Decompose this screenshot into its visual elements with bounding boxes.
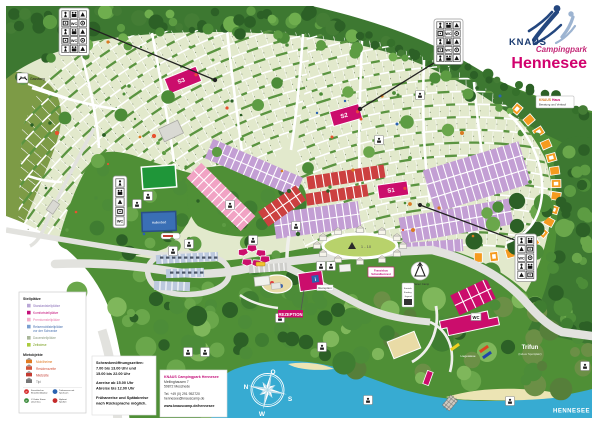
svg-text:Campingpark: Campingpark [536, 45, 588, 54]
svg-text:O: O [270, 369, 275, 376]
svg-text:Zeltwiese: Zeltwiese [33, 343, 47, 347]
svg-text:Trinkwasser mit: Trinkwasser mit [59, 389, 75, 392]
svg-text:WC: WC [473, 315, 480, 320]
svg-text:P: P [26, 399, 28, 403]
svg-text:Hennesee: Hennesee [511, 55, 587, 72]
svg-text:HENNESEE: HENNESEE [553, 409, 590, 415]
svg-text:N: N [244, 384, 249, 391]
svg-text:Spüllort: Spüllort [59, 401, 67, 404]
svg-text:Trifun: Trifun [522, 345, 539, 351]
svg-text:Franziskus: Franziskus [374, 269, 389, 273]
svg-text:Dauerstellplätze: Dauerstellplätze [33, 336, 56, 340]
svg-text:Schrankenöffnungszeiten:: Schrankenöffnungszeiten: [96, 361, 144, 365]
svg-text:WC: WC [445, 49, 452, 53]
svg-text:S: S [288, 396, 293, 403]
svg-text:Beratung und Verkauf: Beratung und Verkauf [539, 103, 566, 107]
svg-text:REZEPTION: REZEPTION [279, 312, 303, 317]
svg-text:Spülraum: Spülraum [59, 392, 69, 395]
svg-text:15.00 bis 22.00 Uhr: 15.00 bis 22.00 Uhr [96, 372, 131, 376]
svg-text:7.00 bis 13.00 Uhr und: 7.00 bis 13.00 Uhr und [96, 367, 137, 371]
svg-text:www.knauscamp.de/hennesee: www.knauscamp.de/hennesee [163, 404, 214, 408]
svg-text:WC: WC [518, 256, 525, 260]
svg-text:Frühanreise und Spätabreise: Frühanreise und Spätabreise [96, 396, 148, 400]
svg-text:Gassiweg: Gassiweg [30, 77, 45, 81]
svg-text:Standardstellplätze: Standardstellplätze [33, 304, 60, 308]
svg-text:Rezeption: Rezeption [318, 286, 332, 290]
svg-text:nach Rücksprache möglich.: nach Rücksprache möglich. [96, 402, 146, 406]
svg-text:Liegewiese: Liegewiese [460, 354, 475, 358]
svg-text:1 - 10: 1 - 10 [361, 244, 372, 249]
svg-text:WC: WC [71, 39, 78, 43]
svg-text:(Indoor Sportplatz): (Indoor Sportplatz) [518, 352, 541, 356]
svg-text:Meilinghausen 7: Meilinghausen 7 [164, 380, 189, 384]
svg-text:Komfortstellplätze: Komfortstellplätze [33, 311, 59, 315]
svg-text:P: P [26, 390, 28, 394]
svg-text:vor der Schranke: vor der Schranke [33, 329, 57, 333]
svg-text:hennesee@knauscamp.de: hennesee@knauscamp.de [164, 397, 205, 401]
svg-text:Hydrant: Hydrant [59, 398, 67, 401]
svg-text:KNAUS Campingpark Hennesee: KNAUS Campingpark Hennesee [164, 375, 219, 379]
svg-text:59872 Meschede: 59872 Meschede [164, 385, 190, 389]
svg-text:V-Oeder Strom: V-Oeder Strom [31, 398, 46, 401]
svg-text:KNAUS Haus: KNAUS Haus [539, 98, 560, 102]
svg-text:Kunterb.: Kunterb. [404, 287, 413, 290]
svg-text:Mietobjekte: Mietobjekte [23, 353, 43, 357]
svg-text:Brandmeldeplatz: Brandmeldeplatz [31, 392, 47, 395]
svg-text:Residenzzelte: Residenzzelte [36, 367, 56, 371]
svg-text:Schwalbennest: Schwalbennest [371, 272, 391, 276]
svg-text:WC: WC [117, 220, 124, 224]
svg-text:abschluss: abschluss [31, 402, 42, 404]
svg-text:Tipi: Tipi [36, 380, 41, 384]
svg-text:W: W [259, 411, 266, 418]
svg-text:Tel. +49 (0) 291 952720: Tel. +49 (0) 291 952720 [164, 392, 200, 396]
svg-text:Jugend: Jugend [404, 296, 412, 298]
svg-text:Premiumstellplätze: Premiumstellplätze [33, 318, 60, 322]
svg-text:Stellplätze: Stellplätze [23, 297, 41, 301]
svg-text:Kinderg.: Kinderg. [404, 291, 413, 294]
svg-text:Mietzelte: Mietzelte [36, 373, 49, 377]
svg-text:Hallenbad: Hallenbad [152, 220, 167, 225]
svg-text:Anreise ab 15.00 Uhr: Anreise ab 15.00 Uhr [96, 381, 134, 385]
svg-text:Feuerlöscher: Feuerlöscher [31, 389, 44, 392]
svg-text:Abreise bis 12.00 Uhr: Abreise bis 12.00 Uhr [96, 387, 135, 391]
svg-text:WC: WC [71, 22, 78, 26]
svg-text:WC: WC [445, 32, 452, 36]
svg-text:Mobilheime: Mobilheime [36, 360, 53, 364]
